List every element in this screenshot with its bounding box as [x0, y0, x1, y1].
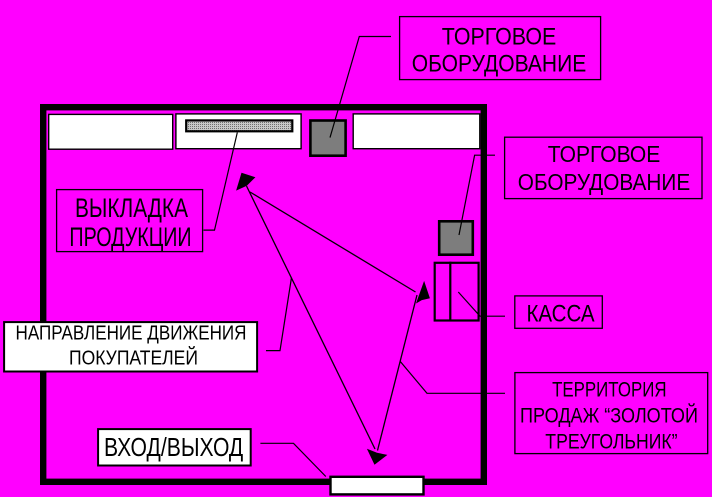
svg-text:ПРОДАЖ “ЗОЛОТОЙ: ПРОДАЖ “ЗОЛОТОЙ	[520, 402, 698, 428]
svg-text:ОБОРУДОВАНИЕ: ОБОРУДОВАНИЕ	[412, 50, 586, 76]
svg-text:НАПРАВЛЕНИЕ ДВИЖЕНИЯ: НАПРАВЛЕНИЕ ДВИЖЕНИЯ	[16, 322, 247, 345]
svg-text:ТОРГОВОЕ: ТОРГОВОЕ	[548, 141, 661, 167]
svg-text:ПРОДУКЦИИ: ПРОДУКЦИИ	[69, 222, 191, 252]
svg-text:ТЕРРИТОРИЯ: ТЕРРИТОРИЯ	[552, 379, 666, 402]
svg-text:ВЫКЛАДКА: ВЫКЛАДКА	[75, 193, 188, 223]
svg-text:ПОКУПАТЕЛЕЙ: ПОКУПАТЕЛЕЙ	[69, 346, 198, 370]
svg-text:КАССА: КАССА	[526, 300, 594, 327]
svg-text:ТОРГОВОЕ: ТОРГОВОЕ	[442, 23, 556, 49]
svg-text:ТРЕУГОЛЬНИК”: ТРЕУГОЛЬНИК”	[545, 430, 677, 454]
svg-text:ОБОРУДОВАНИЕ: ОБОРУДОВАНИЕ	[518, 169, 690, 195]
svg-text:ВХОД/ВЫХОД: ВХОД/ВЫХОД	[104, 433, 243, 463]
